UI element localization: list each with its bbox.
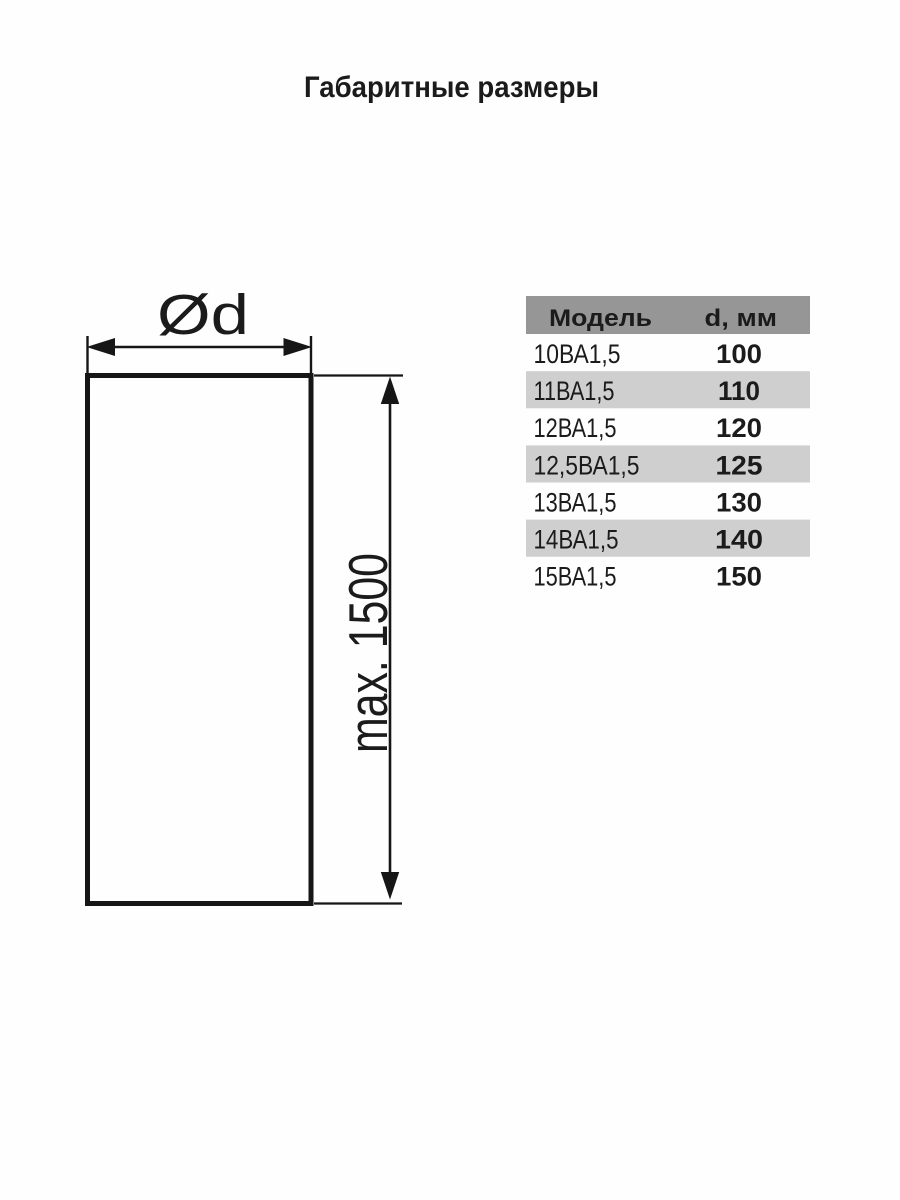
svg-text:Ød: Ød — [157, 283, 249, 347]
svg-text:max. 1500: max. 1500 — [338, 553, 399, 753]
svg-text:100: 100 — [716, 339, 762, 369]
svg-text:14ВА1,5: 14ВА1,5 — [534, 525, 619, 555]
svg-text:13ВА1,5: 13ВА1,5 — [534, 487, 617, 517]
svg-text:12,5ВА1,5: 12,5ВА1,5 — [534, 450, 640, 480]
svg-text:d, мм: d, мм — [705, 305, 778, 332]
svg-text:15ВА1,5: 15ВА1,5 — [534, 562, 617, 592]
svg-text:10ВА1,5: 10ВА1,5 — [534, 339, 621, 369]
svg-text:125: 125 — [716, 450, 763, 480]
svg-text:110: 110 — [718, 376, 760, 406]
svg-text:130: 130 — [716, 487, 762, 517]
svg-text:Модель: Модель — [549, 305, 652, 332]
svg-text:Габаритные размеры: Габаритные размеры — [304, 71, 599, 104]
svg-text:11ВА1,5: 11ВА1,5 — [534, 376, 615, 406]
svg-text:140: 140 — [715, 525, 763, 555]
svg-text:12ВА1,5: 12ВА1,5 — [534, 413, 617, 443]
svg-text:120: 120 — [716, 413, 762, 443]
svg-text:150: 150 — [716, 562, 762, 592]
